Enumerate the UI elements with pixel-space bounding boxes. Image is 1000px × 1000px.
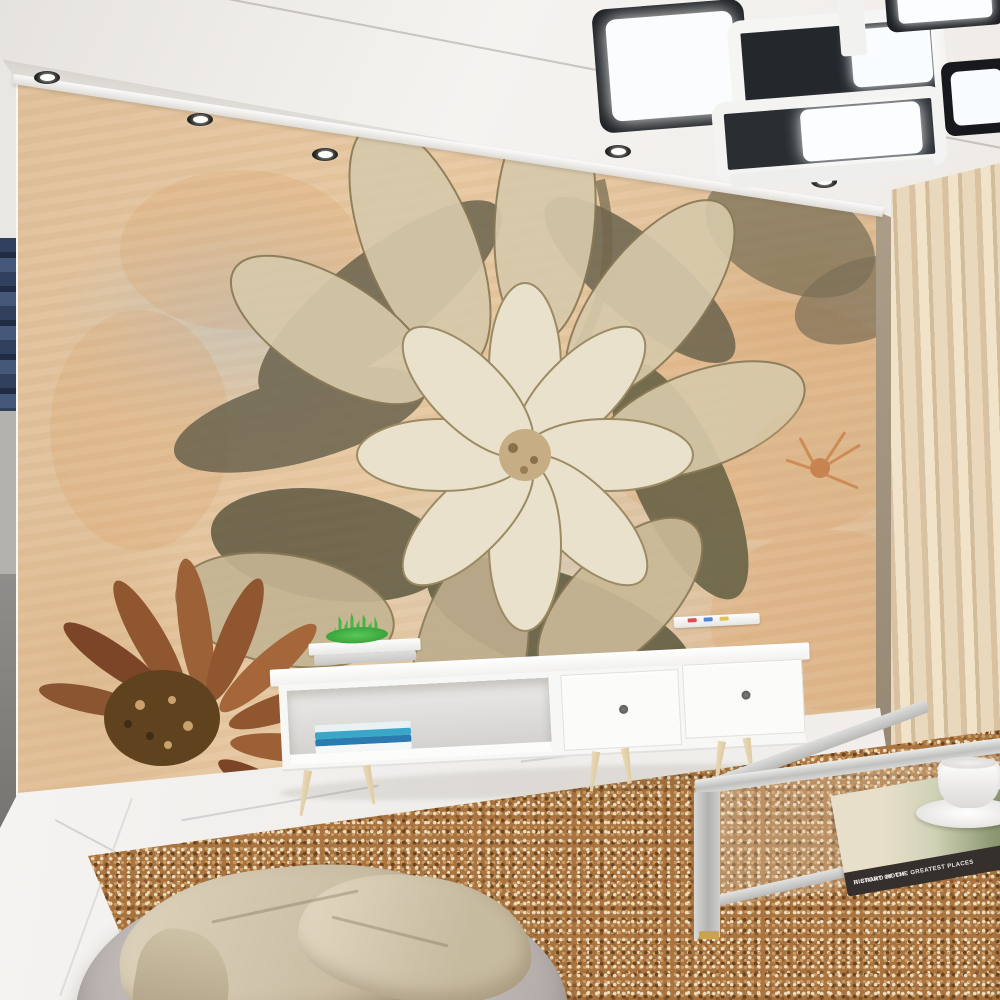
drawer-knob [741,690,750,699]
shelf-magazines [315,721,412,754]
lamp-lit-panel [800,101,924,162]
teacup-rim [941,757,997,769]
book-author: RICHARD HOCH [853,872,905,887]
stand-leg [585,751,603,792]
recessed-spotlight [34,71,60,84]
geometric-ceiling-lamp [585,0,1000,206]
coffee-table-foot [699,931,719,939]
recessed-spotlight [312,148,338,161]
drawer-right [682,659,806,739]
left-wall-gray [0,411,17,576]
recessed-spotlight [187,113,213,126]
lamp-lit-panel [950,68,1000,126]
living-room-photo: HISTORY OF THE GREATEST PLACES RICHARD H… [0,0,1000,1000]
drawer-left [560,669,682,751]
lamp-connector [836,0,867,57]
left-shelf-object [0,238,17,413]
drawer-knob [619,705,628,714]
stand-leg [360,764,380,806]
magazine-stack [674,613,760,628]
coffee-table-leg [694,791,720,938]
stand-leg [294,769,314,816]
mural-inner-flower [357,283,693,631]
